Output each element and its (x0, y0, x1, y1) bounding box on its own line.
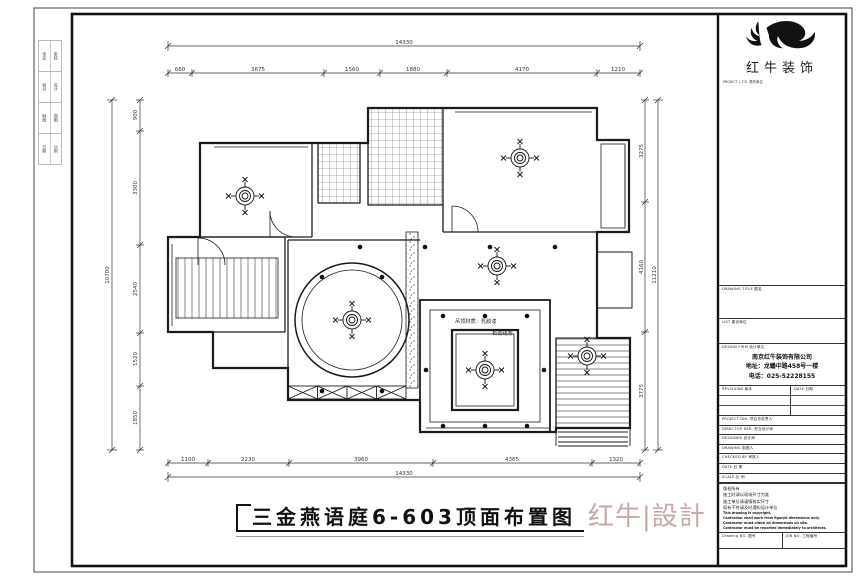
director-row: DIRECTOR DER. 担当设计师 (719, 425, 845, 435)
designer-label: DESIGNER 设计师 (722, 436, 755, 441)
dim-label: 4170 (515, 67, 529, 73)
binding-strip-label: 描图 (51, 103, 62, 133)
ceiling-lamp-symbol (333, 301, 371, 339)
revisions-date-label: DATE 日期 (794, 387, 813, 392)
dim-label: 1210 (611, 67, 625, 73)
dim-label: 3275 (639, 144, 645, 158)
binding-strip-label: 审定 (39, 41, 51, 71)
binding-strip-label: 制图 (39, 103, 51, 133)
drawing-row: DRAWING 制图人 (719, 444, 845, 454)
design-firm-label: DESIGN FIRM 设计单位 (722, 345, 764, 350)
drawing-title-cell: DRAWING TITLE 图名 (719, 285, 845, 318)
drawing-label: DRAWING 制图人 (722, 446, 754, 451)
drawing-no-label: Drawing NO. 图号 (722, 534, 756, 539)
dim-label: 4365 (505, 457, 519, 463)
revisions-cell: REVISIONS 版本 DATE 日期 (719, 385, 845, 415)
project-ltd-label: PROJECT L.T.D. 委托单位 (723, 79, 845, 84)
dim-label: 3300 (133, 181, 139, 195)
dim-label: 1880 (406, 67, 420, 73)
drawing-title: 三金燕语庭6-603顶面布置图 (252, 501, 582, 530)
floor-plan: 吊顶材质：乳胶漆 石膏线条 (168, 108, 632, 446)
dim-label: 900 (133, 109, 139, 120)
redbull-logo-icon (743, 18, 821, 54)
dim-label: 14330 (395, 40, 413, 46)
ceiling-lamp-symbol (478, 247, 516, 285)
dim-label: 2230 (241, 457, 255, 463)
dimension-bottom-segments: 1100 2230 3960 4365 1320 (165, 457, 643, 467)
scale-row: SCALE 比 例 (719, 473, 845, 482)
dimension-bottom-overall: 14330 (165, 471, 643, 482)
title-underline-thick (236, 530, 584, 532)
dimension-top-overall: 14330 (165, 40, 643, 51)
job-no-label: JOB NO. 工程编号 (786, 534, 818, 539)
ceiling-lamp-symbol (226, 177, 264, 215)
x-beam-strip (288, 386, 406, 399)
grid-ceiling-small (318, 143, 360, 203)
binding-strip-row: 审定 审核 (38, 40, 62, 72)
binding-strip-row: 制图 描图 (38, 103, 62, 134)
title-underline-thin (236, 536, 584, 537)
scale-label: SCALE 比 例 (722, 475, 745, 480)
ceiling-material-note: 吊顶材质：乳胶漆 (455, 317, 497, 325)
dim-label: 1520 (133, 352, 139, 366)
dimension-right-overall: 11210 (652, 97, 663, 453)
binding-strip-row: 校对 设计 (38, 72, 62, 103)
firm-address: 地址：龙蟠中路458号一楼 (719, 362, 845, 371)
stairs (556, 428, 630, 446)
revisions-label: REVISIONS 版本 (722, 387, 752, 392)
client-label: LIST 建设单位 (722, 320, 747, 325)
dimension-left-segments: 900 3300 2540 1520 1850 (133, 97, 144, 453)
title-block-footer-cell (719, 548, 845, 566)
client-cell: LIST 建设单位 (719, 318, 845, 343)
dim-label: 3775 (639, 384, 645, 398)
drawing-no-cell: Drawing NO. 图号 JOB NO. 工程编号 (719, 532, 845, 548)
director-label: DIRECTOR DER. 担当设计师 (722, 427, 773, 432)
dim-label: 1320 (609, 457, 623, 463)
date-label: DATE 日 期 (722, 465, 742, 470)
binding-strip: 审定 审核 校对 设计 制图 描图 日期 比例 (38, 40, 62, 165)
ceiling-lamp-symbol (466, 351, 504, 389)
note-line: Contractor must be reported immediately … (723, 526, 843, 531)
dim-label: 660 (175, 67, 186, 73)
date-row: DATE 日 期 (719, 463, 845, 473)
designer-row: DESIGNER 设计师 (719, 434, 845, 444)
dim-label: 1560 (345, 67, 359, 73)
drawing-title-label: DRAWING TITLE 图名 (722, 287, 762, 292)
project-dir-row: PROJECT DIR. 项目总负责人 (719, 415, 845, 425)
dim-label: 3675 (251, 67, 265, 73)
dimension-right-segments: 3275 4160 3775 (639, 97, 649, 453)
logo-area: 红牛装饰 PROJECT L.T.D. 委托单位 (719, 18, 845, 84)
checked-by-label: CHECKED BY 审核人 (722, 455, 760, 460)
binding-strip-label: 校对 (39, 72, 51, 102)
dim-label: 10700 (105, 266, 111, 284)
dim-label: 3960 (354, 457, 368, 463)
plaster-line-note: 石膏线条 (492, 329, 513, 337)
dim-label: 1850 (133, 411, 139, 425)
binding-strip-label: 设计 (51, 72, 62, 102)
door-arcs (198, 206, 478, 265)
striped-panel-left-room (176, 258, 278, 318)
dim-label: 4160 (639, 260, 645, 274)
project-dir-label: PROJECT DIR. 项目总负责人 (722, 417, 773, 422)
logo-name: 红牛装饰 (719, 57, 845, 76)
binding-strip-row: 日期 比例 (38, 134, 62, 165)
firm-phone: 电话：025-52228155 (719, 372, 845, 381)
dimension-left-overall: 10700 (105, 97, 117, 453)
redbull-design-watermark: 红牛|設計 (588, 496, 706, 533)
binding-strip-label: 审核 (51, 41, 62, 71)
binding-strip-label: 日期 (39, 134, 51, 164)
title-block: 红牛装饰 PROJECT L.T.D. 委托单位 DRAWING TITLE 图… (719, 14, 845, 566)
title-bracket (236, 504, 251, 531)
dim-label: 2540 (133, 282, 139, 296)
grid-ceiling-large (368, 108, 443, 205)
dim-label: 14330 (395, 471, 413, 477)
notes-cell: 版权所有 施工时请以现场尺寸为准 施工单位请谨慎核实尺寸 如有不符请及时通知设计… (719, 482, 845, 532)
dim-label: 11210 (652, 266, 658, 284)
firm-name: 南京红牛装饰有限公司 (719, 353, 845, 362)
ceiling-lamp-symbol (501, 139, 539, 177)
binding-strip-label: 比例 (51, 134, 62, 164)
design-firm-cell: DESIGN FIRM 设计单位 南京红牛装饰有限公司 地址：龙蟠中路458号一… (719, 343, 845, 385)
checked-by-row: CHECKED BY 审核人 (719, 453, 845, 463)
dimension-top-segments: 660 3675 1560 1880 4170 1210 (165, 67, 643, 77)
dim-label: 1100 (181, 457, 195, 463)
